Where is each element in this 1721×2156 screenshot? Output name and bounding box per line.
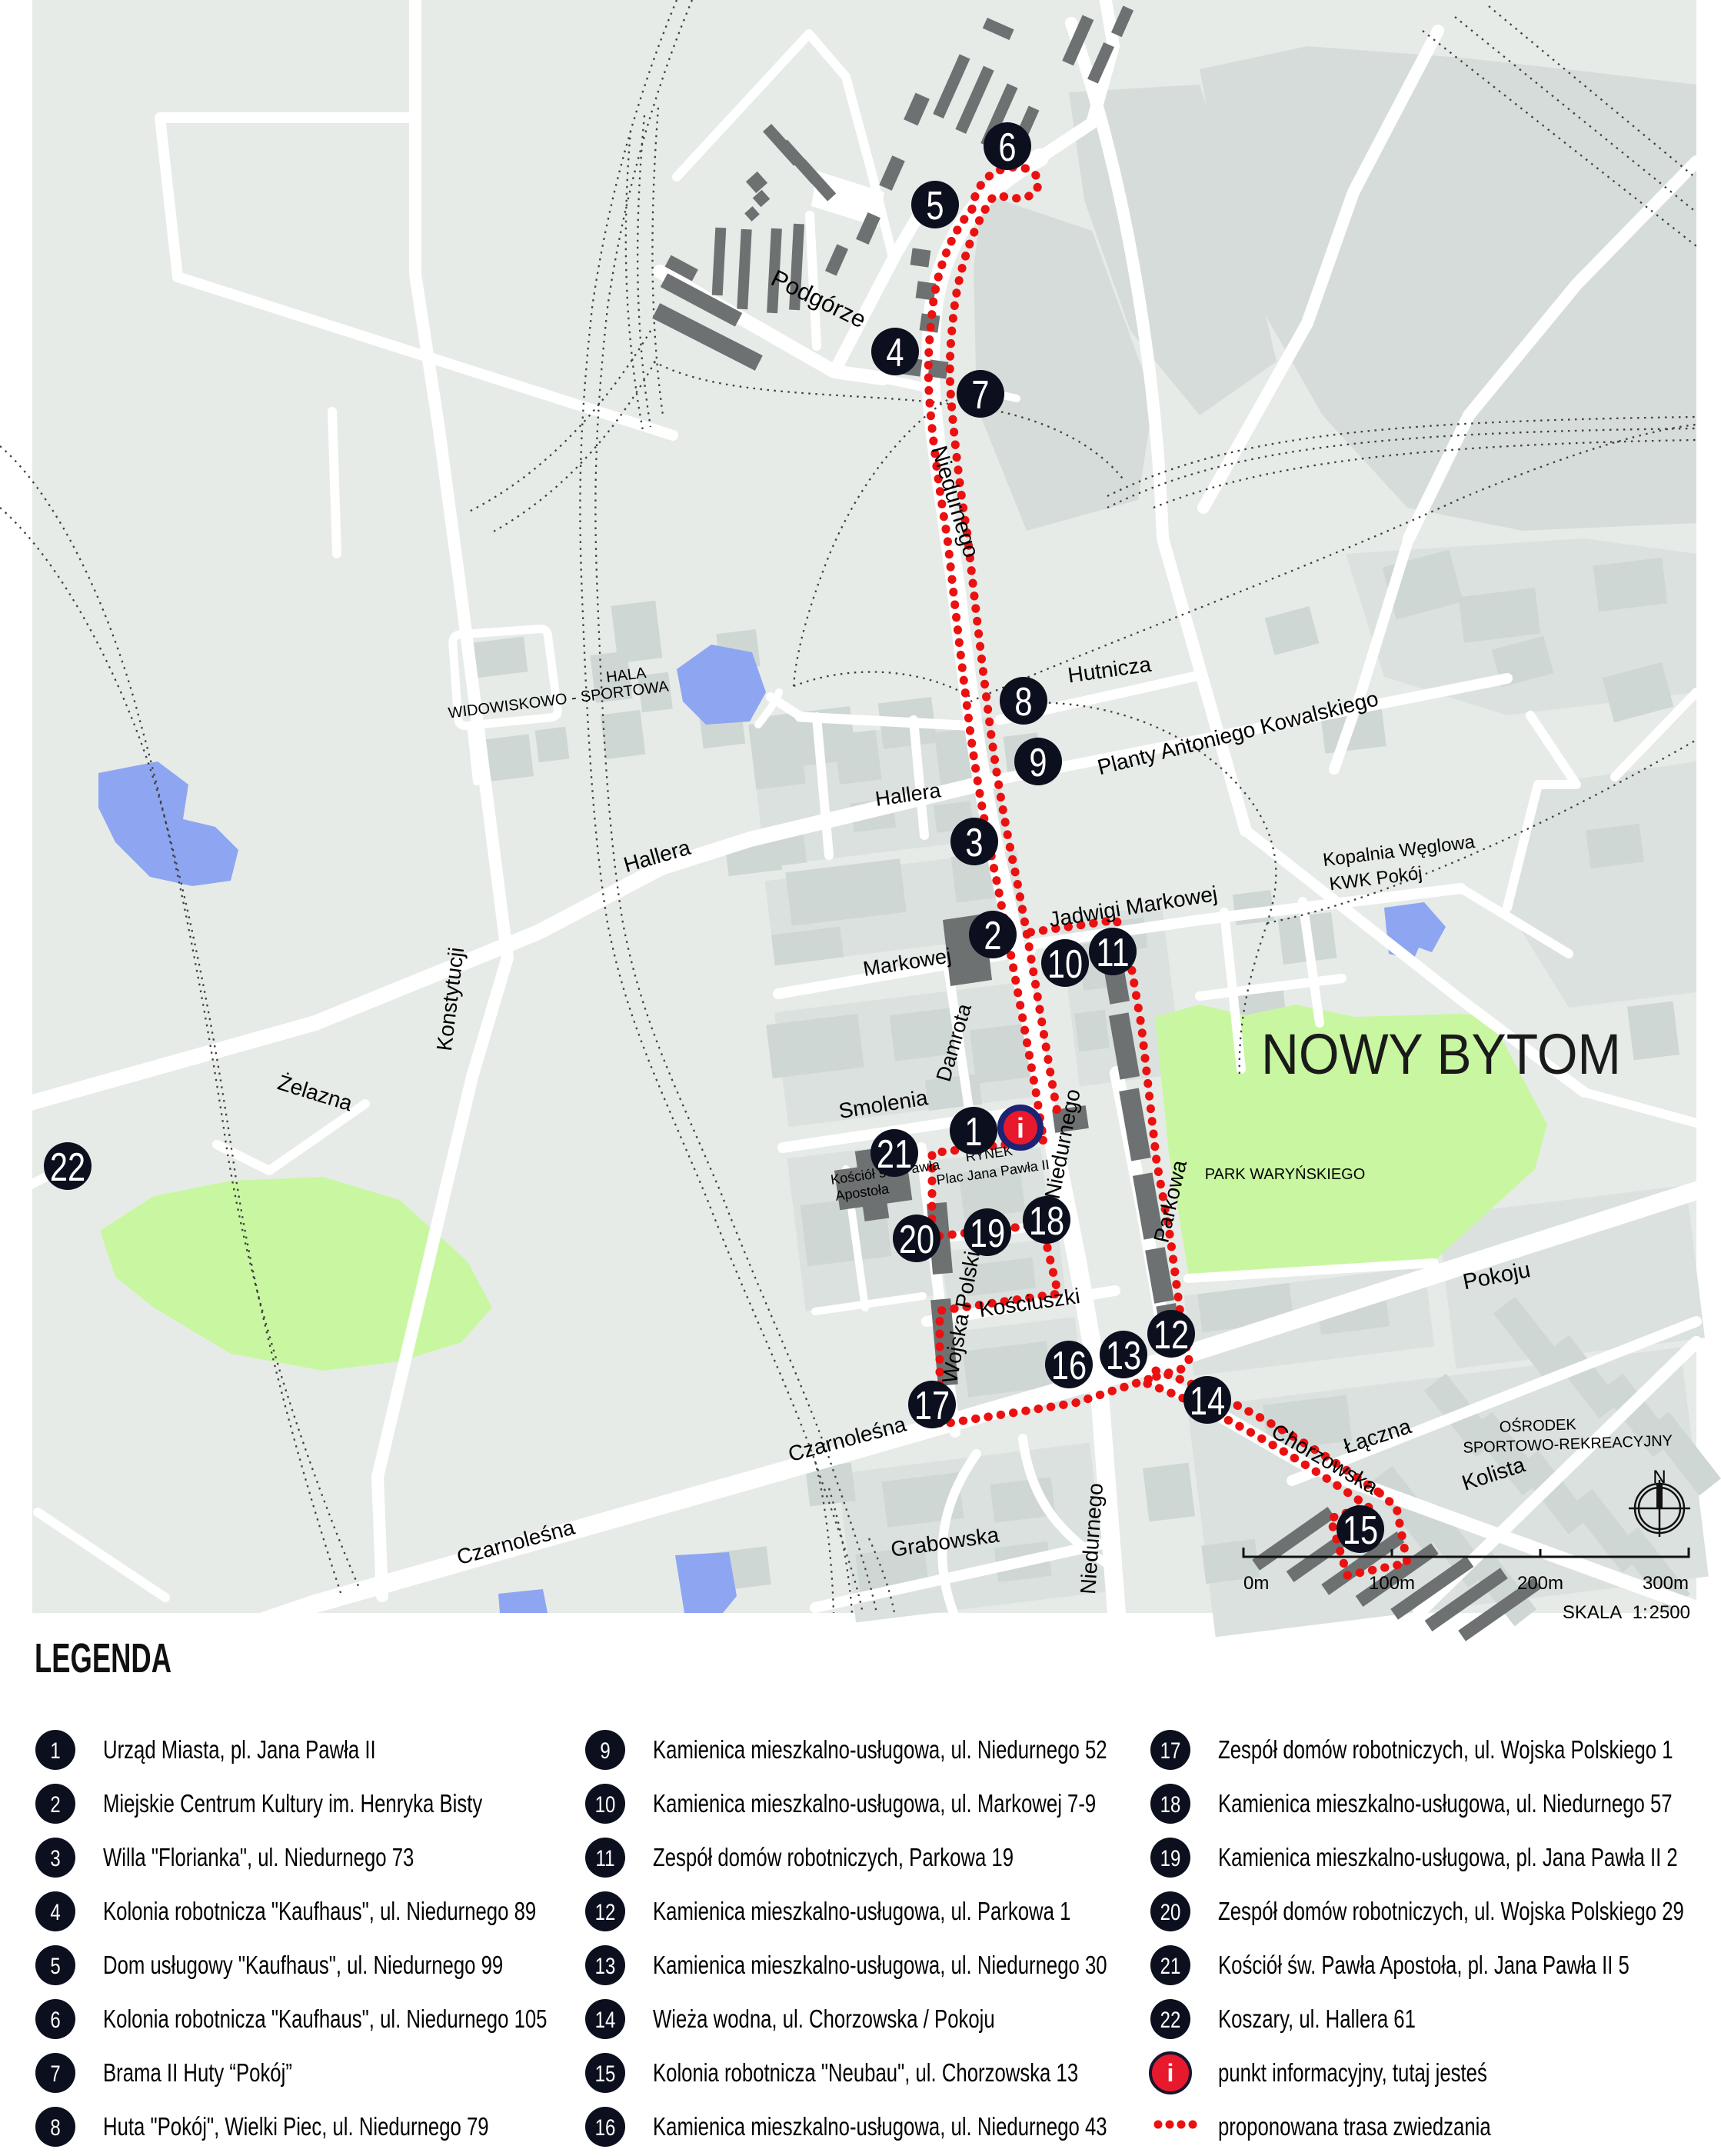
svg-text:7: 7 (971, 372, 989, 418)
svg-text:7: 7 (50, 2060, 60, 2086)
svg-text:Huta "Pokój", Wielki Piec, ul.: Huta "Pokój", Wielki Piec, ul. Niedurneg… (103, 2113, 489, 2141)
svg-text:2: 2 (984, 913, 1001, 958)
svg-text:Kamienica mieszkalno-usługowa,: Kamienica mieszkalno-usługowa, ul. Niedu… (653, 1951, 1107, 1980)
svg-text:8: 8 (50, 2114, 60, 2140)
svg-text:Kościół św. Pawła Apostoła, pl: Kościół św. Pawła Apostoła, pl. Jana Paw… (1218, 1951, 1629, 1980)
svg-text:Kamienica mieszkalno-usługowa,: Kamienica mieszkalno-usługowa, ul. Niedu… (1218, 1790, 1673, 1818)
svg-text:1: 1 (50, 1737, 60, 1763)
svg-text:Kamienica mieszkalno-usługowa,: Kamienica mieszkalno-usługowa, ul. Marko… (653, 1790, 1096, 1818)
svg-text:Kolonia robotnicza "Kaufhaus",: Kolonia robotnicza "Kaufhaus", ul. Niedu… (103, 1898, 536, 1926)
svg-text:12: 12 (1153, 1312, 1189, 1358)
svg-text:19: 19 (1160, 1844, 1181, 1871)
svg-text:Kolonia robotnicza "Neubau", u: Kolonia robotnicza "Neubau", ul. Chorzow… (653, 2059, 1078, 2088)
svg-text:200m: 200m (1517, 1573, 1563, 1594)
svg-text:Urząd Miasta, pl. Jana Pawła I: Urząd Miasta, pl. Jana Pawła II (103, 1736, 376, 1764)
svg-text:i: i (1017, 1112, 1024, 1144)
svg-text:Willa "Florianka", ul. Niedurn: Willa "Florianka", ul. Niedurnego 73 (103, 1844, 414, 1872)
svg-text:100m: 100m (1369, 1573, 1415, 1594)
svg-text:5: 5 (926, 183, 944, 228)
svg-text:Kamienica mieszkalno-usługowa,: Kamienica mieszkalno-usługowa, ul. Niedu… (653, 1736, 1107, 1764)
svg-text:punkt informacyjny, tutaj jest: punkt informacyjny, tutaj jesteś (1218, 2059, 1487, 2088)
svg-text:14: 14 (1190, 1378, 1225, 1424)
svg-text:Koszary, ul. Hallera 61: Koszary, ul. Hallera 61 (1218, 2005, 1416, 2034)
svg-text:21: 21 (877, 1131, 912, 1177)
svg-text:Zespół domów robotniczych, Par: Zespół domów robotniczych, Parkowa 19 (653, 1844, 1014, 1872)
svg-text:3: 3 (965, 820, 983, 865)
svg-text:21: 21 (1160, 1952, 1181, 1978)
svg-text:Zespół domów robotniczych, ul.: Zespół domów robotniczych, ul. Wojska Po… (1218, 1736, 1673, 1764)
svg-text:N: N (1653, 1467, 1666, 1488)
svg-text:Kolonia robotnicza "Kaufhaus",: Kolonia robotnicza "Kaufhaus", ul. Niedu… (103, 2005, 547, 2034)
svg-text:2: 2 (50, 1791, 60, 1817)
svg-text:4: 4 (50, 1898, 60, 1924)
svg-text:Kamienica mieszkalno-usługowa,: Kamienica mieszkalno-usługowa, pl. Jana … (1218, 1844, 1678, 1872)
svg-text:13: 13 (595, 1952, 616, 1978)
svg-text:11: 11 (1096, 930, 1129, 975)
svg-text:14: 14 (595, 2006, 616, 2032)
svg-text:9: 9 (1029, 740, 1047, 785)
svg-text:20: 20 (1160, 1898, 1181, 1924)
svg-text:1: 1 (964, 1109, 982, 1155)
svg-text:10: 10 (595, 1791, 616, 1817)
svg-text:SKALA 1: 2500: SKALA 1: 2500 (1563, 1602, 1690, 1623)
svg-text:5: 5 (50, 1952, 60, 1978)
svg-text:Kamienica mieszkalno-usługowa,: Kamienica mieszkalno-usługowa, ul. Parko… (653, 1898, 1070, 1926)
svg-text:PARK WARYŃSKIEGO: PARK WARYŃSKIEGO (1205, 1165, 1366, 1183)
svg-text:22: 22 (1160, 2006, 1181, 2032)
svg-text:13: 13 (1106, 1333, 1141, 1378)
svg-text:OŚRODEK: OŚRODEK (1499, 1415, 1576, 1435)
svg-text:4: 4 (886, 330, 904, 375)
svg-text:3: 3 (50, 1844, 60, 1871)
svg-text:Miejskie Centrum Kultury im. H: Miejskie Centrum Kultury im. Henryka Bis… (103, 1790, 482, 1818)
svg-text:16: 16 (1051, 1343, 1087, 1388)
svg-text:NOWY BYTOM: NOWY BYTOM (1261, 1022, 1621, 1086)
svg-text:300m: 300m (1643, 1573, 1689, 1594)
svg-text:Zespół domów robotniczych, ul.: Zespół domów robotniczych, ul. Wojska Po… (1218, 1898, 1684, 1926)
svg-text:11: 11 (596, 1844, 615, 1871)
svg-text:6: 6 (998, 125, 1016, 170)
svg-text:12: 12 (595, 1898, 616, 1924)
svg-text:18: 18 (1029, 1198, 1064, 1244)
svg-text:15: 15 (595, 2060, 616, 2086)
svg-text:15: 15 (1343, 1508, 1378, 1553)
svg-text:Wieża wodna, ul. Chorzowska /: Wieża wodna, ul. Chorzowska / Pokoju (653, 2005, 995, 2034)
svg-text:i: i (1167, 2059, 1174, 2087)
svg-text:17: 17 (914, 1383, 950, 1428)
svg-text:9: 9 (600, 1737, 610, 1763)
svg-text:19: 19 (970, 1211, 1005, 1256)
svg-text:Brama II Huty “Pokój”: Brama II Huty “Pokój” (103, 2059, 292, 2088)
svg-text:Kamienica mieszkalno-usługowa,: Kamienica mieszkalno-usługowa, ul. Niedu… (653, 2113, 1107, 2141)
svg-text:22: 22 (50, 1145, 85, 1190)
svg-text:Dom usługowy "Kaufhaus", ul. N: Dom usługowy "Kaufhaus", ul. Niedurnego … (103, 1951, 503, 1980)
svg-text:proponowana trasa zwiedzania: proponowana trasa zwiedzania (1218, 2113, 1491, 2141)
svg-text:10: 10 (1047, 941, 1083, 987)
svg-text:18: 18 (1160, 1791, 1181, 1817)
svg-text:0m: 0m (1243, 1573, 1269, 1594)
svg-text:LEGENDA: LEGENDA (35, 1635, 171, 1681)
svg-text:8: 8 (1014, 679, 1032, 725)
svg-text:6: 6 (50, 2006, 60, 2032)
svg-text:17: 17 (1160, 1737, 1181, 1763)
svg-text:16: 16 (595, 2114, 616, 2140)
svg-text:20: 20 (899, 1217, 934, 1262)
